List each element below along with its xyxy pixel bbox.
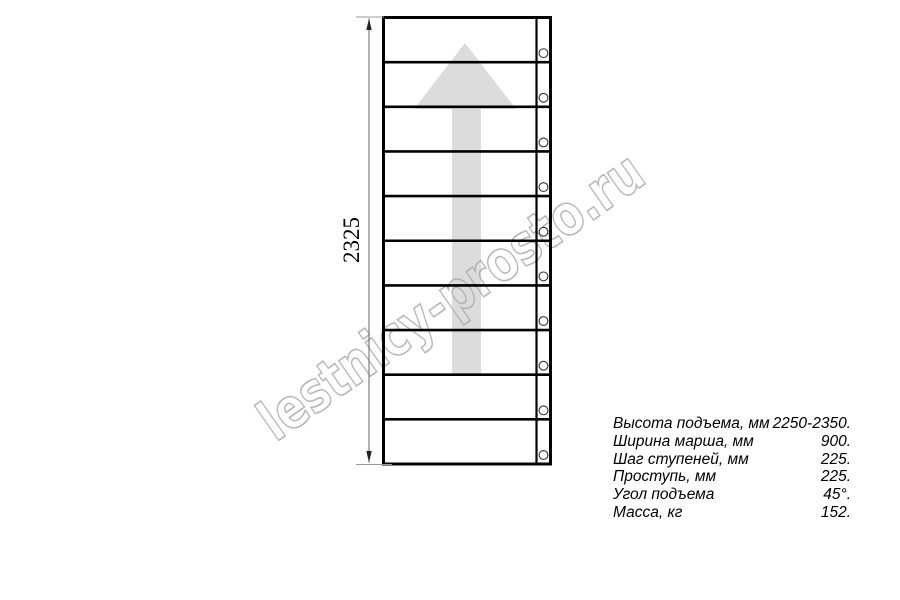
dimension-label: 2325	[339, 217, 364, 263]
spec-label: Масса, кг	[613, 504, 682, 522]
spec-label: Шаг ступеней, мм	[613, 451, 749, 469]
spec-label: Высота подъема, мм	[613, 415, 770, 433]
watermark-text: lestnicy-prosto.ru	[246, 140, 656, 454]
bolt-hole-icon	[539, 451, 548, 460]
bolt-hole-icon	[539, 93, 548, 102]
bolt-hole-icon	[539, 406, 548, 415]
spec-value: 225.	[821, 451, 851, 469]
spec-row: Проступь, мм225.	[613, 468, 851, 486]
bolt-hole-icon	[539, 138, 548, 147]
dimension-arrowhead-top	[366, 19, 371, 31]
bolt-hole-icon	[539, 361, 548, 370]
spec-label: Ширина марша, мм	[613, 433, 754, 451]
spec-label: Проступь, мм	[613, 468, 716, 486]
dimension-arrowhead-bottom	[366, 451, 371, 463]
spec-value: 45°.	[823, 486, 851, 504]
spec-value: 900.	[821, 433, 851, 451]
spec-row: Масса, кг152.	[613, 504, 851, 522]
spec-row: Шаг ступеней, мм225.	[613, 451, 851, 469]
spec-value: 2250-2350.	[773, 415, 851, 433]
drawing-canvas: lestnicy-prosto.ru 2325 Высота подъема, …	[0, 0, 900, 600]
spec-row: Угол подъема45°.	[613, 486, 851, 504]
bolt-hole-icon	[539, 272, 548, 281]
specs-table: Высота подъема, мм2250-2350.Ширина марша…	[613, 415, 851, 522]
spec-value: 152.	[821, 504, 851, 522]
bolt-hole-icon	[539, 227, 548, 236]
spec-row: Ширина марша, мм900.	[613, 433, 851, 451]
spec-row: Высота подъема, мм2250-2350.	[613, 415, 851, 433]
spec-value: 225.	[821, 468, 851, 486]
spec-label: Угол подъема	[613, 486, 714, 504]
bolt-hole-icon	[539, 183, 548, 192]
bolt-hole-icon	[539, 317, 548, 326]
bolt-hole-icon	[539, 49, 548, 58]
